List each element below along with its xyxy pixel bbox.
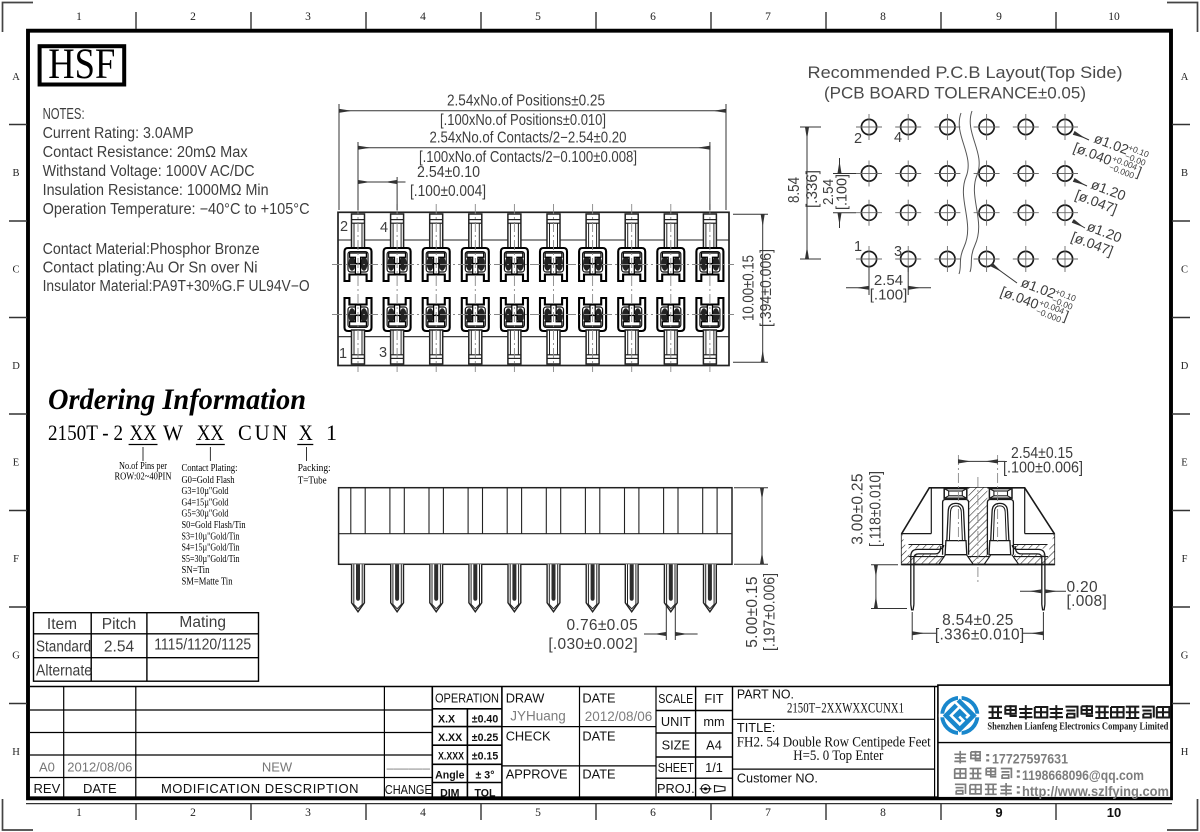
- svg-text:H: H: [1181, 747, 1189, 758]
- svg-text:2150T - 2: 2150T - 2: [48, 420, 123, 445]
- svg-text:Pitch: Pitch: [102, 616, 136, 633]
- svg-text:1198668096@qq.com: 1198668096@qq.com: [1022, 767, 1144, 783]
- svg-text:B: B: [12, 168, 19, 179]
- svg-text:A0: A0: [39, 760, 55, 775]
- svg-text:G: G: [12, 651, 20, 662]
- svg-text:Insulation Resistance: 1000MΩ: Insulation Resistance: 1000MΩ Min: [43, 182, 269, 199]
- svg-text:[.336]: [.336]: [804, 170, 821, 208]
- svg-text:UNIT: UNIT: [661, 714, 691, 729]
- svg-text:[.100]: [.100]: [834, 174, 851, 210]
- svg-text:Insulator Material:PA9T+30%G.F: Insulator Material:PA9T+30%G.F UL94V−O: [43, 278, 310, 295]
- svg-text:DATE: DATE: [83, 781, 117, 796]
- svg-text:T=Tube: T=Tube: [298, 475, 327, 487]
- svg-text:[.008]: [.008]: [1067, 593, 1108, 610]
- svg-text:W: W: [163, 420, 183, 445]
- svg-text:± 3°: ± 3°: [476, 769, 495, 781]
- svg-text:[.336±0.010]: [.336±0.010]: [935, 627, 1025, 644]
- svg-text:3: 3: [305, 11, 311, 23]
- svg-text:SHEET: SHEET: [658, 760, 694, 775]
- svg-text:2012/08/06: 2012/08/06: [67, 760, 132, 775]
- svg-text:2.54xNo.of Contacts/2−2.54±0.2: 2.54xNo.of Contacts/2−2.54±0.20: [430, 130, 627, 147]
- svg-text:SN=Tin: SN=Tin: [182, 564, 210, 576]
- svg-text:6: 6: [650, 11, 656, 23]
- svg-text:NEW: NEW: [262, 760, 293, 775]
- svg-text:TITLE:: TITLE:: [737, 720, 775, 735]
- svg-text:OPERATION: OPERATION: [435, 692, 499, 706]
- svg-text:NOTES:: NOTES:: [43, 106, 85, 123]
- svg-text:B: B: [1181, 168, 1188, 179]
- svg-text:S4=15µ"Gold/Tin: S4=15µ"Gold/Tin: [182, 542, 240, 554]
- svg-text:9: 9: [996, 11, 1002, 23]
- svg-text:Recommended P.C.B Layout(Top S: Recommended P.C.B Layout(Top Side): [808, 64, 1123, 82]
- svg-text:2150T−2XXWXXCUNX1: 2150T−2XXWXXCUNX1: [787, 701, 904, 717]
- svg-text:A: A: [1181, 72, 1189, 83]
- svg-text:8: 8: [880, 807, 886, 819]
- svg-text:F: F: [13, 554, 19, 565]
- svg-text:[.100]: [.100]: [870, 287, 908, 304]
- svg-text:10: 10: [1108, 11, 1120, 23]
- svg-text:DIM: DIM: [440, 787, 460, 799]
- svg-text:E: E: [1181, 458, 1187, 469]
- svg-text:Mating: Mating: [179, 614, 226, 631]
- svg-text:[.394±0.006]: [.394±0.006]: [758, 249, 775, 327]
- svg-text:3: 3: [305, 807, 311, 819]
- svg-text:SM=Matte Tin: SM=Matte Tin: [182, 576, 233, 588]
- svg-text:2.54±0.10: 2.54±0.10: [417, 164, 480, 181]
- svg-text:XX: XX: [197, 420, 224, 445]
- svg-text:±0.40: ±0.40: [472, 714, 499, 726]
- svg-text:4: 4: [420, 11, 426, 23]
- svg-text:[.100±0.006]: [.100±0.006]: [1003, 460, 1083, 477]
- svg-text:5.00±0.15: 5.00±0.15: [744, 576, 761, 648]
- svg-text:DATE: DATE: [582, 767, 615, 782]
- svg-text:2: 2: [190, 11, 196, 23]
- svg-text:6: 6: [650, 807, 656, 819]
- svg-text:Packing:: Packing:: [298, 462, 331, 474]
- svg-text:No.of Pins per: No.of Pins per: [119, 461, 167, 472]
- svg-text:Contact Material:Phosphor Bron: Contact Material:Phosphor Bronze: [43, 241, 260, 258]
- svg-text:APPROVE: APPROVE: [506, 767, 568, 782]
- svg-text:Withstand Voltage: 1000V AC/DC: Withstand Voltage: 1000V AC/DC: [43, 163, 255, 180]
- svg-text:2012/08/06: 2012/08/06: [585, 709, 653, 724]
- svg-text:F: F: [1182, 554, 1188, 565]
- svg-text:SIZE: SIZE: [662, 738, 690, 753]
- svg-text:2.54: 2.54: [104, 639, 135, 656]
- svg-text:2: 2: [340, 219, 348, 235]
- svg-text:Contact Resistance: 20mΩ Max: Contact Resistance: 20mΩ Max: [43, 144, 248, 161]
- svg-text:1: 1: [854, 239, 862, 255]
- svg-text:Current Rating: 3.0AMP: Current Rating: 3.0AMP: [43, 125, 194, 142]
- svg-text:X: X: [299, 420, 313, 445]
- svg-text:Customer NO.: Customer NO.: [737, 771, 818, 786]
- svg-text:±0.15: ±0.15: [472, 751, 499, 763]
- svg-text:0.76±0.05: 0.76±0.05: [566, 617, 638, 634]
- svg-text:Angle: Angle: [435, 769, 465, 781]
- svg-text:Contact Plating:: Contact Plating:: [182, 462, 238, 474]
- svg-text:2: 2: [190, 807, 196, 819]
- svg-text:1/1: 1/1: [705, 760, 723, 775]
- svg-text:FIT: FIT: [704, 691, 723, 706]
- svg-text:G4=15µ"Gold: G4=15µ"Gold: [182, 496, 229, 508]
- svg-text:1: 1: [76, 11, 82, 23]
- svg-text:[.197±0.006]: [.197±0.006]: [762, 573, 779, 651]
- svg-text:C: C: [1181, 265, 1188, 276]
- svg-text:XX: XX: [130, 420, 157, 445]
- svg-text:5: 5: [535, 11, 541, 23]
- svg-text:3: 3: [894, 244, 902, 260]
- svg-text:S0=Gold Flash/Tin: S0=Gold Flash/Tin: [182, 519, 246, 531]
- svg-text:C: C: [12, 265, 19, 276]
- svg-text:CUN: CUN: [238, 420, 290, 445]
- svg-text:3: 3: [379, 345, 387, 361]
- svg-text:[.100±0.004]: [.100±0.004]: [410, 183, 486, 200]
- svg-text:9: 9: [995, 805, 1002, 820]
- svg-text:DATE: DATE: [582, 729, 615, 744]
- svg-text:S5=30µ"Gold/Tin: S5=30µ"Gold/Tin: [182, 553, 240, 565]
- svg-text:10.00±0.15: 10.00±0.15: [741, 255, 758, 321]
- svg-text:7: 7: [765, 11, 771, 23]
- svg-text:5: 5: [535, 807, 541, 819]
- svg-text:4: 4: [380, 220, 388, 236]
- svg-text:7: 7: [765, 807, 771, 819]
- svg-text:X.X: X.X: [438, 714, 455, 726]
- svg-text:1: 1: [339, 346, 347, 362]
- svg-text:17727597631: 17727597631: [992, 751, 1068, 767]
- svg-text:1: 1: [326, 420, 337, 445]
- svg-text:Standard: Standard: [36, 639, 91, 656]
- svg-text:SCALE: SCALE: [658, 691, 693, 706]
- svg-text:Alternate: Alternate: [36, 663, 92, 680]
- svg-text:A: A: [12, 72, 20, 83]
- svg-text:CHECK: CHECK: [506, 729, 551, 744]
- svg-text:8.54: 8.54: [786, 177, 803, 203]
- svg-text:Operation Temperature: −40°C t: Operation Temperature: −40°C to +105°C: [43, 201, 310, 218]
- svg-text:PART NO.: PART NO.: [737, 687, 794, 702]
- svg-text:Shenzhen Lianfeng Electronics: Shenzhen Lianfeng Electronics Company Li…: [987, 722, 1168, 733]
- svg-text:G0=Gold Flash: G0=Gold Flash: [182, 474, 235, 486]
- svg-text:(PCB BOARD TOLERANCE±0.05): (PCB BOARD TOLERANCE±0.05): [824, 85, 1086, 103]
- svg-text:2: 2: [854, 131, 862, 147]
- svg-text:E: E: [13, 458, 19, 469]
- svg-text:4: 4: [420, 807, 426, 819]
- svg-text:H: H: [12, 747, 20, 758]
- svg-text:X.XXX: X.XXX: [438, 751, 464, 763]
- svg-text:MODIFICATION DESCRIPTION: MODIFICATION DESCRIPTION: [161, 781, 359, 796]
- svg-text:TOL: TOL: [475, 787, 497, 799]
- svg-text:G5=30µ"Gold: G5=30µ"Gold: [182, 508, 229, 520]
- svg-text:8: 8: [880, 11, 886, 23]
- svg-text:10: 10: [1107, 805, 1121, 820]
- svg-text:3.00±0.25: 3.00±0.25: [850, 473, 867, 545]
- svg-text:1: 1: [76, 807, 82, 819]
- svg-text:A4: A4: [706, 738, 722, 753]
- svg-text:G3=10µ"Gold: G3=10µ"Gold: [182, 485, 229, 497]
- svg-text:1115/1120/1125: 1115/1120/1125: [154, 637, 251, 654]
- svg-text:[.030±0.002]: [.030±0.002]: [548, 636, 638, 653]
- svg-text:G: G: [1181, 651, 1189, 662]
- svg-text:D: D: [12, 361, 20, 372]
- svg-text:DRAW: DRAW: [506, 691, 546, 706]
- svg-text:S3=10µ"Gold/Tin: S3=10µ"Gold/Tin: [182, 530, 240, 542]
- svg-text:http://www.szlfying.com: http://www.szlfying.com: [1022, 783, 1169, 799]
- svg-text:CHANGE: CHANGE: [385, 782, 432, 797]
- svg-text:[.100xNo.of Positions±0.010]: [.100xNo.of Positions±0.010]: [440, 112, 606, 129]
- svg-text:Item: Item: [47, 616, 77, 633]
- svg-text:X.XX: X.XX: [438, 732, 462, 744]
- svg-text:mm: mm: [703, 714, 724, 729]
- svg-text:JYHuang: JYHuang: [510, 709, 566, 724]
- svg-text:REV: REV: [34, 781, 61, 796]
- svg-text:2.54xNo.of Positions±0.25: 2.54xNo.of Positions±0.25: [447, 93, 605, 110]
- svg-text:––––––: ––––––: [387, 761, 431, 776]
- svg-text:Contact plating:Au Or Sn over: Contact plating:Au Or Sn over Ni: [43, 260, 258, 277]
- svg-text:±0.25: ±0.25: [472, 732, 499, 744]
- svg-text:ROW:02~40PIN: ROW:02~40PIN: [115, 472, 172, 483]
- svg-text:H=5. 0 Top Enter: H=5. 0 Top Enter: [793, 748, 883, 764]
- svg-text:PROJ.: PROJ.: [657, 781, 695, 796]
- svg-text:[.118±0.010]: [.118±0.010]: [868, 471, 885, 547]
- svg-text:HSF: HSF: [48, 41, 115, 88]
- svg-text:Ordering Information: Ordering Information: [48, 383, 306, 416]
- svg-text:4: 4: [894, 130, 902, 146]
- svg-text:D: D: [1181, 361, 1189, 372]
- svg-text:DATE: DATE: [582, 691, 615, 706]
